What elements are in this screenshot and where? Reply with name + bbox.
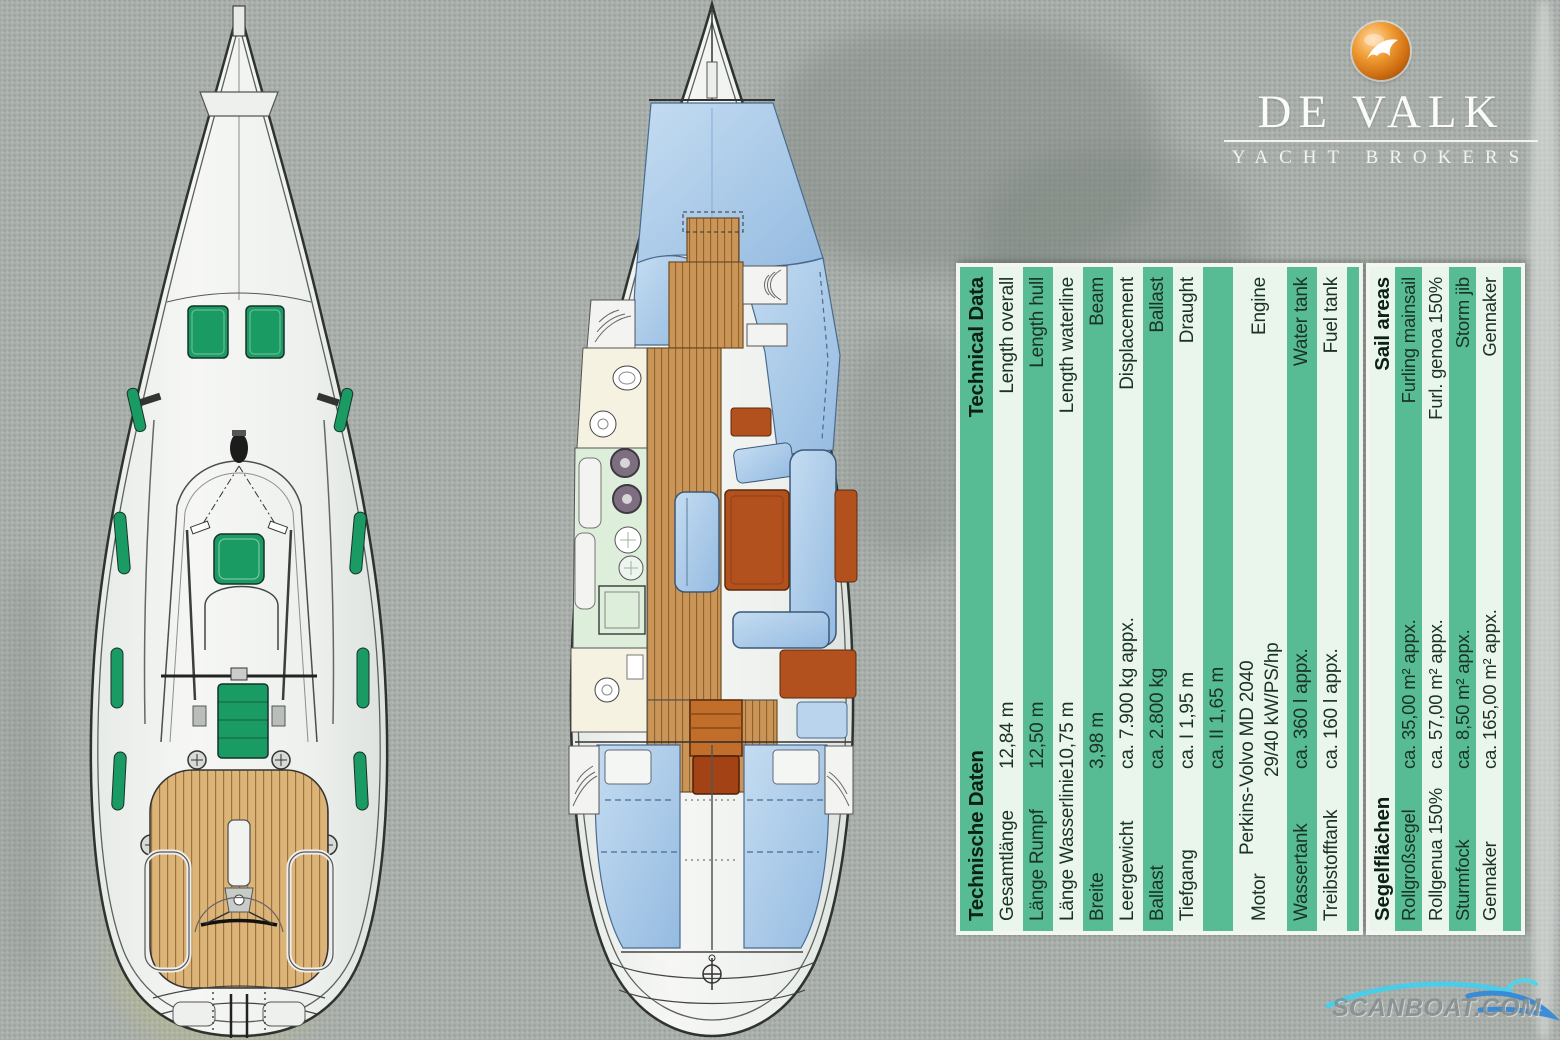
spec-label-en: Length hull <box>1027 267 1049 505</box>
spec-row: Wassertankca. 360 l appx.Water tank <box>1287 267 1317 931</box>
spec-value: 10,75 m <box>1057 505 1079 771</box>
spec-header-row: SegelflächenSail areas <box>1370 267 1395 931</box>
spec-value: ca. 160 l appx. <box>1321 505 1343 771</box>
spec-row: MotorPerkins-Volvo MD 204029/40 kW/PS/hp… <box>1233 267 1287 931</box>
spec-value: 12,50 m <box>1027 505 1049 771</box>
spec-row: Gennakerca. 165,00 m² appx.Gennaker <box>1476 267 1503 931</box>
spec-value: ca. 165,00 m² appx. <box>1479 505 1501 771</box>
brochure-page: DE VALK YACHT BROKERS Technische DatenTe… <box>0 0 1560 1040</box>
spec-label-de: Treibstofftank <box>1321 771 1343 931</box>
spec-value: ca. 8,50 m² appx. <box>1452 505 1474 771</box>
brand-tagline: YACHT BROKERS <box>1220 147 1542 169</box>
spec-label-en: Draught <box>1177 267 1199 505</box>
spec-value: ca. 360 l appx. <box>1291 505 1313 771</box>
spec-label-en: Water tank <box>1291 267 1313 505</box>
spec-value: ca. II 1,65 m <box>1207 505 1229 771</box>
spec-row: Gesamtlänge12,84 mLength overall <box>993 267 1023 931</box>
brand-rule <box>1224 140 1538 142</box>
spec-label-de: Länge Wasserlinie <box>1057 771 1079 931</box>
spec-label-en: Fuel tank <box>1321 267 1343 505</box>
spec-label-en: Engine <box>1249 267 1271 505</box>
spec-value: Perkins-Volvo MD 204029/40 kW/PS/hp <box>1235 505 1285 857</box>
spec-value: 3,98 m <box>1087 505 1109 771</box>
spec-label-de: Länge Rumpf <box>1027 771 1049 931</box>
spec-row: ca. II 1,65 m <box>1203 267 1233 931</box>
spec-label-de: Gesamtlänge <box>997 771 1019 931</box>
scan-blotch <box>0 560 55 980</box>
brand-name: DE VALK <box>1220 86 1542 138</box>
spec-label-de: Sturmfock <box>1452 771 1474 931</box>
deck-plan-drawing <box>55 0 425 1040</box>
spec-label-en: Sail areas <box>1371 267 1395 505</box>
brand-logo: DE VALK YACHT BROKERS <box>1220 22 1542 169</box>
spec-label-de: Wassertank <box>1291 771 1313 931</box>
spec-label-de: Breite <box>1087 771 1109 931</box>
spec-value: ca. 2.800 kg <box>1147 505 1169 771</box>
spec-value: ca. 7.900 kg appx. <box>1117 505 1139 771</box>
spec-label-en: Beam <box>1087 267 1109 505</box>
spec-header-row: Technische DatenTechnical Data <box>960 267 993 931</box>
spec-label-en: Furling mainsail <box>1398 267 1420 505</box>
spec-label-en: Furl. genoa 150% <box>1425 267 1447 505</box>
spec-value: ca. 35,00 m² appx. <box>1398 505 1420 771</box>
spec-value: ca. 57,00 m² appx. <box>1425 505 1447 771</box>
spec-label-de: Rollgroßsegel <box>1398 771 1420 931</box>
falcon-icon <box>1352 22 1410 80</box>
spec-row: Ballastca. 2.800 kgBallast <box>1143 267 1173 931</box>
spec-label-de: Tiefgang <box>1177 771 1199 931</box>
spec-label-de: Leergewicht <box>1117 771 1139 931</box>
interior-plan-drawing <box>535 0 915 1040</box>
spec-table-rotated: Technische DatenTechnical DataGesamtläng… <box>956 263 1526 935</box>
spec-label-en: Displacement <box>1117 267 1139 505</box>
spec-value: 12,84 m <box>997 505 1019 771</box>
spec-value: ca. I 1,95 m <box>1177 505 1199 771</box>
spec-row: Sturmfockca. 8,50 m² appx.Storm jib <box>1449 267 1476 931</box>
spec-label-en: Length overall <box>997 267 1019 505</box>
spec-row: Länge Rumpf12,50 mLength hull <box>1023 267 1053 931</box>
spec-row: Länge Wasserlinie10,75 mLength waterline <box>1053 267 1083 931</box>
spec-label-en: Ballast <box>1147 267 1169 505</box>
spec-row: Treibstofftankca. 160 l appx.Fuel tank <box>1317 267 1347 931</box>
spec-table: Technische DatenTechnical DataGesamtläng… <box>956 263 1525 935</box>
spec-label-de: Gennaker <box>1479 771 1501 931</box>
spec-row: Rollgroßsegelca. 35,00 m² appx.Furling m… <box>1395 267 1422 931</box>
spec-row: Tiefgangca. I 1,95 mDraught <box>1173 267 1203 931</box>
watermark: SCANBOAT.COM <box>1318 966 1560 1040</box>
spec-section: SegelflächenSail areasRollgroßsegelca. 3… <box>1366 263 1525 935</box>
spec-row: Rollgenua 150%ca. 57,00 m² appx.Furl. ge… <box>1422 267 1449 931</box>
spec-label-de: Segelflächen <box>1371 771 1395 931</box>
spec-row: Breite3,98 mBeam <box>1083 267 1113 931</box>
spec-label-en: Length waterline <box>1057 267 1079 505</box>
watermark-text: SCANBOAT.COM <box>1332 994 1541 1023</box>
spec-row: Leergewichtca. 7.900 kg appx.Displacemen… <box>1113 267 1143 931</box>
spec-label-en: Technical Data <box>965 267 989 505</box>
spec-label-de: Technische Daten <box>965 771 989 931</box>
spec-section: Technische DatenTechnical DataGesamtläng… <box>956 263 1363 935</box>
spec-label-en: Storm jib <box>1452 267 1474 505</box>
spec-label-de: Rollgenua 150% <box>1425 771 1447 931</box>
spec-label-de: Ballast <box>1147 771 1169 931</box>
spec-label-en: Gennaker <box>1479 267 1501 505</box>
